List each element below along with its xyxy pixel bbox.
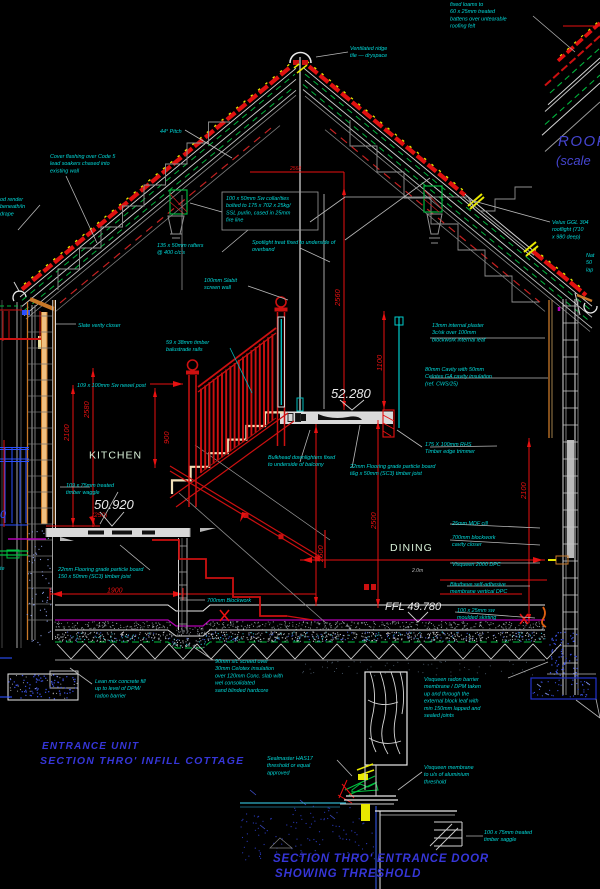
svg-text:threshold or equal: threshold or equal	[267, 763, 311, 769]
svg-text:Slate verity closer: Slate verity closer	[78, 323, 121, 329]
svg-text:ENTRANCE UNIT: ENTRANCE UNIT	[42, 741, 139, 752]
svg-text:100 x 25mm sw: 100 x 25mm sw	[457, 608, 496, 614]
svg-text:109 x 75mm treated: 109 x 75mm treated	[66, 483, 115, 489]
svg-text:25mm MDF cill: 25mm MDF cill	[451, 521, 489, 527]
svg-text:cavity closer: cavity closer	[452, 542, 482, 548]
svg-text:50: 50	[586, 260, 592, 266]
svg-text:fixed loams to: fixed loams to	[450, 2, 483, 8]
svg-text:44° Pitch: 44° Pitch	[160, 129, 182, 135]
svg-text:135 x 50mm rafters: 135 x 50mm rafters	[157, 243, 204, 249]
svg-text:1900: 1900	[107, 588, 123, 595]
svg-text:threshold: threshold	[424, 779, 447, 785]
svg-text:30mm Celotex insulation: 30mm Celotex insulation	[215, 666, 274, 672]
svg-text:Bulkhead downlighters fixed: Bulkhead downlighters fixed	[268, 455, 336, 461]
svg-text:blockwork internal leaf: blockwork internal leaf	[432, 337, 486, 343]
svg-text:900: 900	[162, 431, 171, 444]
svg-text:to u/s of aluminium: to u/s of aluminium	[424, 772, 470, 778]
svg-text:approved: approved	[267, 770, 290, 776]
svg-text:Lean mix concrete fill: Lean mix concrete fill	[95, 679, 146, 685]
svg-text:timber saggle: timber saggle	[484, 837, 516, 843]
svg-text:SHOWING THRESHOLD: SHOWING THRESHOLD	[275, 868, 421, 880]
svg-text:SECTION THRO' INFILL COTTAGE: SECTION THRO' INFILL COTTAGE	[40, 755, 244, 767]
svg-text:overband: overband	[252, 247, 275, 253]
svg-text:x 980 deep): x 980 deep)	[551, 234, 581, 240]
svg-text:lap: lap	[586, 267, 593, 273]
svg-text:radon barrier: radon barrier	[95, 693, 126, 699]
svg-text:sand blinded hardcore: sand blinded hardcore	[215, 688, 268, 694]
svg-text:109 x 100mm Sw newel post: 109 x 100mm Sw newel post	[77, 383, 146, 389]
svg-text:od render: od render	[0, 197, 23, 203]
svg-text:Timber edge trimmer: Timber edge trimmer	[425, 449, 475, 455]
svg-text:screen wall: screen wall	[204, 285, 232, 291]
svg-text:roofing felt: roofing felt	[450, 24, 476, 30]
svg-text:Celotex GA cavity insulation: Celotex GA cavity insulation	[425, 374, 492, 380]
svg-text:1100: 1100	[375, 354, 384, 371]
svg-text:membrane vertical DPC: membrane vertical DPC	[450, 589, 507, 595]
svg-text:(ref. CWS/25): (ref. CWS/25)	[425, 381, 458, 387]
svg-text:2500: 2500	[369, 511, 378, 530]
svg-text:te: te	[0, 566, 5, 572]
svg-text:700mm blockwork: 700mm blockwork	[452, 535, 496, 541]
svg-text:up and through the: up and through the	[424, 691, 469, 697]
svg-text:existing wall: existing wall	[50, 168, 80, 174]
svg-text:Sealmaster HAS17: Sealmaster HAS17	[267, 756, 314, 762]
svg-text:t&g x 50mm (SC3) timber joist: t&g x 50mm (SC3) timber joist	[350, 471, 422, 477]
svg-text:2100: 2100	[519, 481, 528, 500]
svg-text:timber waggle: timber waggle	[66, 490, 100, 496]
svg-text:Cover flashing over Code 5: Cover flashing over Code 5	[50, 154, 116, 160]
svg-text:Visqueen 2000 DPC: Visqueen 2000 DPC	[452, 562, 501, 568]
svg-text:22mm Flooring grade particle b: 22mm Flooring grade particle board	[57, 567, 144, 573]
svg-text:lead soakers chased into: lead soakers chased into	[50, 161, 110, 167]
svg-text:150 x 50mm (SC3) timber joist: 150 x 50mm (SC3) timber joist	[58, 574, 131, 580]
svg-text:2568: 2568	[289, 166, 301, 172]
svg-text:balustrade rails: balustrade rails	[166, 347, 203, 353]
svg-text:beneath/in: beneath/in	[0, 204, 25, 210]
svg-text:up to level of DPM/: up to level of DPM/	[95, 686, 141, 692]
svg-text:@ 400 c/c's: @ 400 c/c's	[157, 250, 185, 256]
svg-text:2100: 2100	[62, 423, 71, 442]
svg-text:60 x 25mm treated: 60 x 25mm treated	[450, 9, 496, 15]
svg-text:175 X 100mm RHS: 175 X 100mm RHS	[425, 442, 472, 448]
svg-text:100 x 75mm treated: 100 x 75mm treated	[484, 830, 533, 836]
svg-text:Visqueen membrane: Visqueen membrane	[424, 765, 474, 771]
svg-text:KITCHEN: KITCHEN	[89, 450, 142, 462]
svg-text:50.920: 50.920	[94, 497, 135, 512]
svg-text:drape: drape	[0, 211, 14, 217]
svg-text:fire line: fire line	[226, 218, 243, 224]
svg-text:Velux GGL 304: Velux GGL 304	[552, 220, 589, 226]
svg-text:battens over untearable: battens over untearable	[450, 16, 507, 22]
svg-text:tile — dryspace: tile — dryspace	[350, 53, 387, 59]
svg-text:Bitutheve self-adhesive: Bitutheve self-adhesive	[450, 582, 506, 588]
svg-text:Spotlight treat fixed to under: Spotlight treat fixed to underside of	[252, 240, 336, 246]
svg-text:bolted to 175 x 702 x 25kg/: bolted to 175 x 702 x 25kg/	[226, 203, 291, 209]
svg-text:(scale: (scale	[556, 153, 591, 168]
svg-text:Ventilated ridge: Ventilated ridge	[350, 46, 387, 52]
svg-text:100mm Slabit: 100mm Slabit	[204, 278, 237, 284]
svg-text:external block leaf with: external block leaf with	[424, 699, 479, 705]
svg-text:membrane / DPM taken: membrane / DPM taken	[424, 684, 481, 690]
svg-text:52.280: 52.280	[331, 386, 372, 401]
svg-text:rooflight (710: rooflight (710	[552, 227, 583, 233]
svg-text:100 x 50mm Sw collar/ties: 100 x 50mm Sw collar/ties	[226, 196, 289, 202]
svg-text:3c/sk over 100mm: 3c/sk over 100mm	[432, 330, 477, 336]
svg-text:80mm Cavity with 50mm: 80mm Cavity with 50mm	[425, 367, 485, 373]
svg-text:700mm Blockwork: 700mm Blockwork	[207, 598, 251, 604]
svg-text:2.0m: 2.0m	[411, 568, 423, 574]
svg-text:59 x 38mm timber: 59 x 38mm timber	[166, 340, 209, 346]
svg-text:ROOF: ROOF	[558, 133, 600, 150]
svg-text:SSL purlin, cased in 25mm: SSL purlin, cased in 25mm	[226, 210, 291, 216]
svg-text:wel consolidated: wel consolidated	[215, 681, 256, 687]
svg-text:FFL 49.780: FFL 49.780	[385, 601, 442, 613]
svg-text:to underside of balcony: to underside of balcony	[268, 462, 324, 468]
svg-text:0: 0	[0, 509, 7, 521]
svg-text:2500: 2500	[316, 544, 325, 563]
svg-text:2580: 2580	[82, 400, 91, 419]
svg-text:22mm Flooring grade particle b: 22mm Flooring grade particle board	[349, 464, 436, 470]
svg-text:13mm internal plaster: 13mm internal plaster	[432, 323, 484, 329]
svg-text:moulded skirting: moulded skirting	[457, 615, 496, 621]
svg-text:SECTION THRO' ENTRANCE DOOR: SECTION THRO' ENTRANCE DOOR	[273, 853, 489, 865]
svg-text:2560: 2560	[333, 288, 342, 307]
svg-text:Visqueen radon barrier: Visqueen radon barrier	[424, 677, 479, 683]
svg-text:DINING: DINING	[390, 542, 433, 554]
svg-text:over 120mm Conc. slab with: over 120mm Conc. slab with	[215, 673, 283, 679]
svg-text:sealed joints: sealed joints	[424, 713, 454, 719]
svg-text:90mm s/c screed over: 90mm s/c screed over	[215, 659, 268, 665]
svg-text:Nat: Nat	[586, 253, 595, 259]
svg-text:min 150mm lapped and: min 150mm lapped and	[424, 706, 481, 712]
